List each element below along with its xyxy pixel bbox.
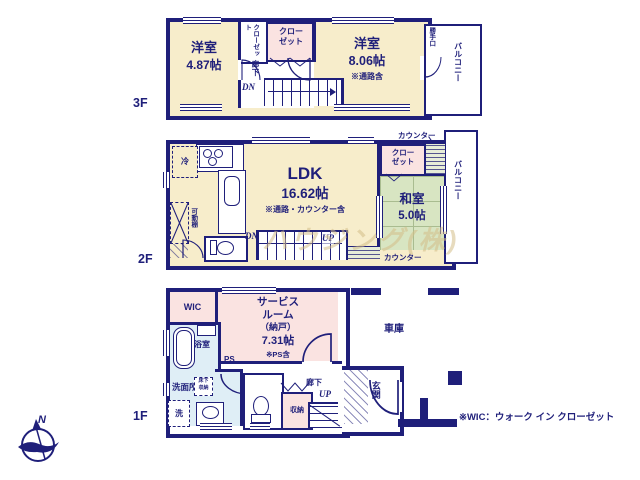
2f-toilet-tank (210, 240, 217, 255)
2f-window-left (163, 172, 170, 188)
3f-left-room-name: 洋室 (170, 40, 238, 56)
3f-closet-wide: クローゼット (266, 22, 316, 62)
1f-up-label: UP (319, 389, 331, 400)
1f-underfloor-line2: 収納 (195, 385, 212, 392)
1f-garage-dash-left (351, 288, 381, 295)
1f-storage-doors-icon (281, 383, 309, 391)
3f-window-top-right (332, 17, 394, 24)
1f-laundry: 洗 (168, 400, 190, 427)
1f-bath-label: 浴室 (194, 340, 210, 350)
1f-laundry-label: 洗 (175, 409, 183, 419)
compass-icon: N (12, 411, 64, 469)
3f-stairs-arrow-line (268, 91, 332, 92)
3f-right-room-name: 洋室 (314, 36, 420, 52)
1f-entrance-tataki-hatch (344, 370, 368, 424)
1f-service-door-arc (303, 334, 331, 362)
1f-entrance-door-arc (370, 380, 398, 414)
1f-bath-counter (197, 325, 216, 336)
2f-shelf-box (170, 202, 189, 244)
3f-closet-wide-label: クローゼット (277, 27, 305, 47)
2f-window-top (252, 137, 310, 144)
2f-balcony-label: バルコニー (453, 160, 463, 224)
3f-dn-label: DN (242, 82, 255, 93)
3f-balcony-label: バルコニー (453, 42, 463, 100)
1f-toilet-bowl-icon (253, 396, 269, 416)
watermark: ハウジング(株) (262, 220, 459, 257)
2f-fridge-label: 冷 (181, 157, 189, 167)
1f-hall-label: 廊下 (306, 378, 322, 388)
1f-window-bath (163, 330, 170, 356)
3f-window-bottom-right (334, 104, 410, 111)
1f-vanity-basin-icon (202, 406, 219, 419)
1f-floor-label: 1F (133, 409, 148, 424)
2f-shelf-x-icon (171, 203, 188, 243)
2f-fridge: 冷 (172, 146, 198, 178)
2f-counter-top (424, 144, 445, 176)
1f-garage-pillar (448, 371, 462, 385)
3f-right-room-note: ※通路含 (314, 72, 420, 82)
3f-closet-narrow: クローゼット (241, 22, 268, 64)
3f-floor-label: 3F (133, 96, 148, 111)
1f-underfloor-line1: 床下 (195, 378, 212, 385)
2f-washitsu-closet-doors-icon (386, 174, 402, 181)
3f-backdoor-arc (425, 57, 441, 77)
3f-right-room-size: 8.06帖 (314, 54, 420, 69)
2f-sink (224, 176, 240, 206)
1f-storage-label: 収納 (290, 407, 304, 415)
3f-stairs-arrow-head (330, 88, 336, 96)
3f-stairs-right-wall (341, 78, 344, 104)
2f-washitsu-name: 和室 (380, 192, 444, 207)
1f-porch-wall-horizontal (398, 419, 457, 427)
2f-dn-label: DN (245, 231, 258, 242)
2f-ldk-name: LDK (250, 164, 360, 184)
2f-toilet-bowl-icon (217, 241, 234, 255)
2f-burner-icon-3 (208, 157, 217, 166)
1f-service-line2: ルーム (218, 309, 338, 322)
floorplan-canvas: クローゼット クローゼット 廊下 DN 洋室 4.87帖 洋室 8.06帖 ※通… (0, 0, 640, 480)
1f-wic-label: WIC (184, 302, 202, 313)
2f-toilet-door-arc (183, 240, 203, 258)
3f-window-top-left (183, 17, 221, 24)
2f-closet-label: クローゼット (389, 148, 417, 167)
2f-closet: クローゼット (380, 144, 426, 178)
1f-window-bottom-washroom (200, 423, 232, 430)
3f-right-room-door-arc (288, 58, 310, 80)
1f-window-top (222, 287, 276, 294)
1f-garage-dash-right (428, 288, 459, 295)
3f-closet-narrow-label: クローゼット (243, 24, 259, 60)
3f-left-room-door-arc (242, 60, 260, 80)
2f-ldk-size: 16.62帖 (250, 186, 360, 202)
1f-garage-label: 車庫 (384, 324, 404, 336)
1f-bathtub-inner (176, 330, 192, 366)
2f-floor-label: 2F (138, 252, 153, 267)
3f-closet-doors-icon (270, 58, 290, 66)
1f-toilet-tank (251, 414, 271, 423)
1f-window-washroom (163, 383, 170, 396)
1f-washroom-top-wall (215, 369, 243, 372)
2f-burner-icon-2 (214, 149, 223, 158)
1f-ps-label: PS (224, 355, 235, 365)
1f-underfloor-storage: 床下 収納 (194, 377, 213, 396)
3f-left-room-size: 4.87帖 (170, 58, 238, 72)
2f-ldk-note: ※通路・カウンター含 (250, 205, 360, 215)
1f-window-bottom-toilet (250, 423, 270, 430)
1f-service-line1: サービス (218, 296, 338, 309)
1f-wic: WIC (170, 292, 218, 325)
compass-n-label: N (38, 414, 47, 426)
2f-window-top-right (348, 137, 374, 144)
1f-service-line3: （納戸） (218, 322, 338, 333)
wic-footnote: ※WIC：ウォーク イン クローゼット (459, 412, 614, 423)
3f-window-bottom-left (180, 104, 222, 111)
